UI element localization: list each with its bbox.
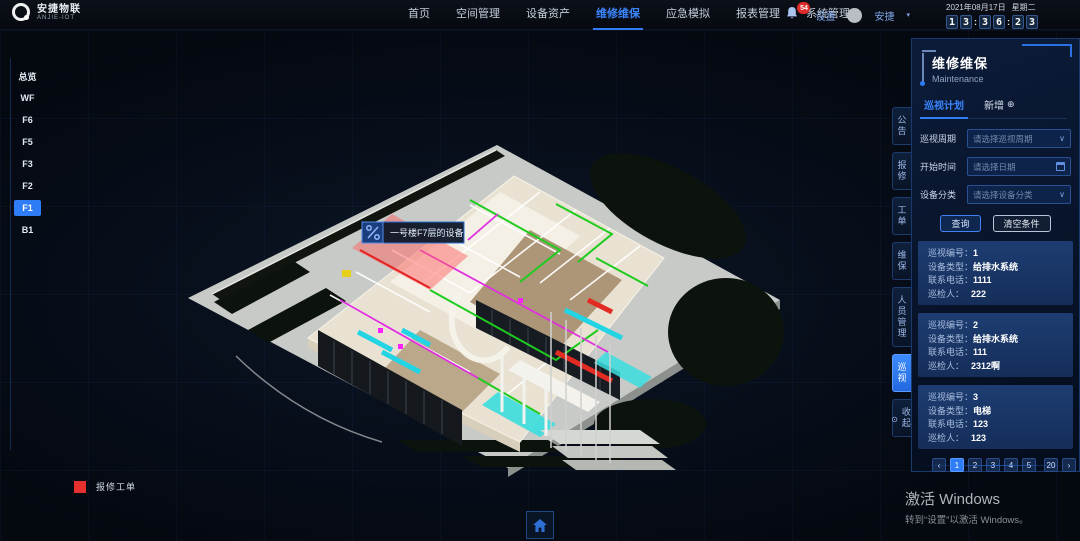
chevron-down-icon: ∨ bbox=[1059, 190, 1065, 199]
card-tel-label: 联系电话： bbox=[928, 419, 973, 430]
page-button-2[interactable]: 2 bbox=[968, 458, 982, 472]
card-person-value: 222 bbox=[971, 289, 986, 300]
maintenance-panel: 维修维保 Maintenance 巡视计划 新增 ⊕ 巡视周期 请选择巡视周期 … bbox=[911, 38, 1080, 472]
inspection-card[interactable]: 巡视编号：1 设备类型：给排水系统 联系电话：1111 巡检人：222 bbox=[918, 241, 1073, 305]
clock-colon: : bbox=[974, 17, 977, 27]
card-person-label: 巡检人： bbox=[928, 361, 964, 372]
card-person-value: 123 bbox=[971, 433, 986, 444]
pagination: ‹ 1 2 3 4 5 20 › bbox=[932, 458, 1073, 472]
tooltip-label: 一号楼F7层的设备 bbox=[390, 227, 464, 238]
nav-item-space[interactable]: 空间管理 bbox=[443, 0, 513, 30]
side-tab-collapse[interactable]: 收起 ⊙ bbox=[892, 399, 911, 437]
collapse-icon: ⊙ bbox=[891, 415, 900, 424]
card-person-label: 巡检人： bbox=[928, 289, 964, 300]
calendar-icon bbox=[1056, 162, 1065, 171]
tab-inspection-plan[interactable]: 巡视计划 bbox=[924, 97, 964, 112]
legend-label: 报修工单 bbox=[96, 480, 136, 493]
side-tab-maintenance[interactable]: 维保 bbox=[892, 242, 911, 280]
clock-digit: 3 bbox=[960, 15, 972, 29]
query-button[interactable]: 查询 bbox=[940, 215, 980, 232]
side-tab-personnel[interactable]: 人员管理 bbox=[892, 287, 911, 347]
notifications-button[interactable]: 54 bbox=[785, 6, 803, 24]
windows-activation-watermark: 激活 Windows 转到“设置”以激活 Windows。 bbox=[905, 488, 1029, 526]
start-date-picker[interactable]: 请选择日期 bbox=[967, 157, 1071, 176]
side-tab-workorder[interactable]: 工单 bbox=[892, 197, 911, 235]
inspection-card[interactable]: 巡视编号：3 设备类型：电梯 联系电话：123 巡检人：123 bbox=[918, 385, 1073, 449]
side-tab-announcements[interactable]: 公告 bbox=[892, 107, 911, 145]
page-button-3[interactable]: 3 bbox=[986, 458, 1000, 472]
card-no-value: 2 bbox=[973, 320, 978, 331]
home-icon bbox=[533, 519, 547, 532]
panel-subtitle: Maintenance bbox=[932, 74, 1069, 84]
card-no-label: 巡视编号： bbox=[928, 392, 973, 403]
collapse-label: 收起 bbox=[900, 407, 913, 429]
clock: 1 3 : 3 6 : 2 3 bbox=[946, 15, 1072, 29]
card-type-value: 给排水系统 bbox=[973, 334, 1018, 345]
nav-item-assets[interactable]: 设备资产 bbox=[513, 0, 583, 30]
page-button-last[interactable]: 20 bbox=[1044, 458, 1058, 472]
brand-name: 安捷物联 bbox=[37, 4, 81, 15]
floor-item-f6[interactable]: F6 bbox=[14, 112, 41, 128]
card-tel-label: 联系电话： bbox=[928, 275, 973, 286]
panel-header: 维修维保 Maintenance bbox=[922, 53, 1069, 84]
card-person-value: 2312啊 bbox=[971, 361, 1000, 372]
card-type-label: 设备类型： bbox=[928, 262, 973, 273]
card-no-label: 巡视编号： bbox=[928, 320, 973, 331]
brand-subname: ANJIE-IOT bbox=[37, 15, 81, 21]
floor-item-f5[interactable]: F5 bbox=[14, 134, 41, 150]
floor-item-wf[interactable]: WF bbox=[14, 90, 41, 106]
inspection-list: 巡视编号：1 设备类型：给排水系统 联系电话：1111 巡检人：222 巡视编号… bbox=[918, 241, 1073, 449]
period-label: 巡视周期 bbox=[920, 132, 962, 145]
category-select[interactable]: 请选择设备分类 ∨ bbox=[967, 185, 1071, 204]
start-time-label: 开始时间 bbox=[920, 160, 962, 173]
card-no-value: 1 bbox=[973, 248, 978, 259]
floor-item-overview[interactable]: 总览 bbox=[14, 68, 41, 84]
reset-view-home-button[interactable] bbox=[526, 511, 554, 539]
app-root: 一号楼F7层的设备 安捷物联 ANJIE-IOT 首页 空间管理 设备资产 维修… bbox=[0, 0, 1080, 541]
filter-form: 巡视周期 请选择巡视周期 ∨ 开始时间 请选择日期 设备分类 请选择设备分类 ∨ bbox=[920, 129, 1071, 204]
side-tab-inspection[interactable]: 巡视 bbox=[892, 354, 911, 392]
period-placeholder: 请选择巡视周期 bbox=[973, 133, 1033, 145]
panel-title: 维修维保 bbox=[932, 53, 1069, 72]
floor-item-b1[interactable]: B1 bbox=[14, 222, 41, 238]
chevron-down-icon[interactable]: ▾ bbox=[906, 11, 910, 19]
card-no-label: 巡视编号： bbox=[928, 248, 973, 259]
card-no-value: 3 bbox=[973, 392, 978, 403]
user-menu[interactable]: 安捷 bbox=[874, 8, 894, 23]
right-edge-tabs: 公告 报修 工单 维保 人员管理 巡视 收起 ⊙ bbox=[892, 107, 911, 437]
current-weekday: 星期二 bbox=[1012, 2, 1036, 13]
floor-item-f3[interactable]: F3 bbox=[14, 156, 41, 172]
clock-colon: : bbox=[1007, 17, 1010, 27]
date-placeholder: 请选择日期 bbox=[973, 161, 1016, 173]
top-right-cluster: 54 设置 安捷 ▾ bbox=[785, 0, 910, 30]
page-button-4[interactable]: 4 bbox=[1004, 458, 1018, 472]
floor-item-f2[interactable]: F2 bbox=[14, 178, 41, 194]
inspection-card[interactable]: 巡视编号：2 设备类型：给排水系统 联系电话：111 巡检人：2312啊 bbox=[918, 313, 1073, 377]
card-type-label: 设备类型： bbox=[928, 406, 973, 417]
add-label: 新增 bbox=[984, 97, 1004, 112]
watermark-title: 激活 Windows bbox=[905, 488, 1029, 509]
card-tel-value: 111 bbox=[973, 347, 987, 358]
tab-add-new[interactable]: 新增 ⊕ bbox=[984, 97, 1015, 112]
category-label: 设备分类 bbox=[920, 188, 962, 201]
datetime-widget: 2021年08月17日 星期二 1 3 : 3 6 : 2 3 bbox=[946, 2, 1072, 29]
clock-digit: 3 bbox=[1026, 15, 1038, 29]
side-tab-repair[interactable]: 报修 bbox=[892, 152, 911, 190]
category-placeholder: 请选择设备分类 bbox=[973, 189, 1033, 201]
current-date: 2021年08月17日 bbox=[946, 2, 1006, 13]
period-select[interactable]: 请选择巡视周期 ∨ bbox=[967, 129, 1071, 148]
page-button-1[interactable]: 1 bbox=[950, 458, 964, 472]
floor-item-f1[interactable]: F1 bbox=[14, 200, 41, 216]
card-type-value: 给排水系统 bbox=[973, 262, 1018, 273]
nav-item-maintenance[interactable]: 维修维保 bbox=[583, 0, 653, 30]
form-actions: 查询 清空条件 bbox=[912, 215, 1079, 232]
clock-digit: 3 bbox=[979, 15, 991, 29]
watermark-subtitle: 转到“设置”以激活 Windows。 bbox=[905, 512, 1029, 526]
clock-digit: 6 bbox=[993, 15, 1005, 29]
card-tel-value: 123 bbox=[973, 419, 988, 430]
card-tel-label: 联系电话： bbox=[928, 347, 973, 358]
floor-selector: 总览 WF F6 F5 F3 F2 F1 B1 bbox=[14, 68, 41, 238]
model-tooltip[interactable]: 一号楼F7层的设备 bbox=[362, 222, 464, 243]
clock-digit: 2 bbox=[1012, 15, 1024, 29]
card-tel-value: 1111 bbox=[973, 275, 992, 286]
avatar[interactable] bbox=[847, 8, 862, 23]
clear-filters-button[interactable]: 清空条件 bbox=[993, 215, 1051, 232]
add-icon: ⊕ bbox=[1007, 99, 1015, 110]
page-prev-button[interactable]: ‹ bbox=[932, 458, 946, 472]
top-bar: 安捷物联 ANJIE-IOT 首页 空间管理 设备资产 维修维保 应急模拟 报表… bbox=[0, 0, 1080, 30]
map-legend: 报修工单 bbox=[74, 480, 136, 493]
page-button-5[interactable]: 5 bbox=[1022, 458, 1036, 472]
chevron-down-icon: ∨ bbox=[1059, 134, 1065, 143]
card-type-label: 设备类型： bbox=[928, 334, 973, 345]
settings-button[interactable]: 设置 bbox=[815, 8, 835, 23]
logo-icon bbox=[12, 3, 30, 21]
panel-tabs: 巡视计划 新增 ⊕ bbox=[924, 97, 1067, 119]
notification-badge: 54 bbox=[797, 2, 810, 14]
page-next-button[interactable]: › bbox=[1062, 458, 1076, 472]
nav-item-home[interactable]: 首页 bbox=[395, 0, 443, 30]
nav-item-emergency[interactable]: 应急模拟 bbox=[653, 0, 723, 30]
card-person-label: 巡检人： bbox=[928, 433, 964, 444]
brand-logo[interactable]: 安捷物联 ANJIE-IOT bbox=[12, 3, 81, 21]
card-type-value: 电梯 bbox=[973, 406, 991, 417]
clock-digit: 1 bbox=[946, 15, 958, 29]
nav-item-reports[interactable]: 报表管理 bbox=[723, 0, 793, 30]
legend-color-repair-workorder bbox=[74, 481, 86, 493]
